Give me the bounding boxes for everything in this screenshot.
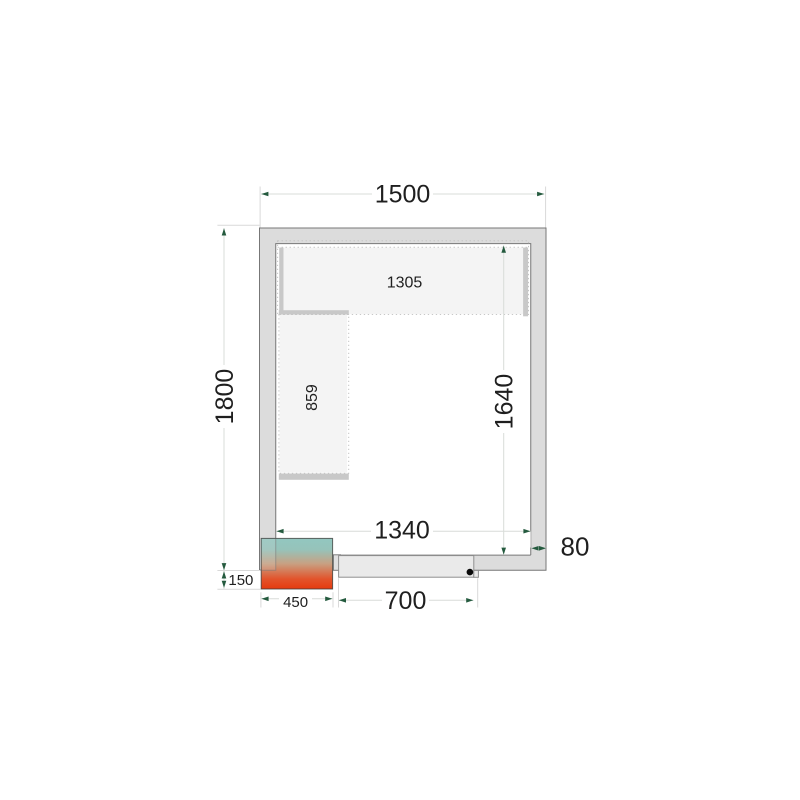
svg-text:859: 859 xyxy=(304,384,321,411)
svg-text:80: 80 xyxy=(561,532,590,562)
svg-text:700: 700 xyxy=(385,587,427,615)
svg-text:1305: 1305 xyxy=(387,275,423,292)
svg-text:1500: 1500 xyxy=(375,180,431,208)
svg-text:1800: 1800 xyxy=(211,369,239,425)
svg-text:1340: 1340 xyxy=(374,517,430,545)
svg-text:450: 450 xyxy=(283,594,308,611)
svg-text:150: 150 xyxy=(228,572,253,589)
svg-text:1640: 1640 xyxy=(491,374,519,430)
